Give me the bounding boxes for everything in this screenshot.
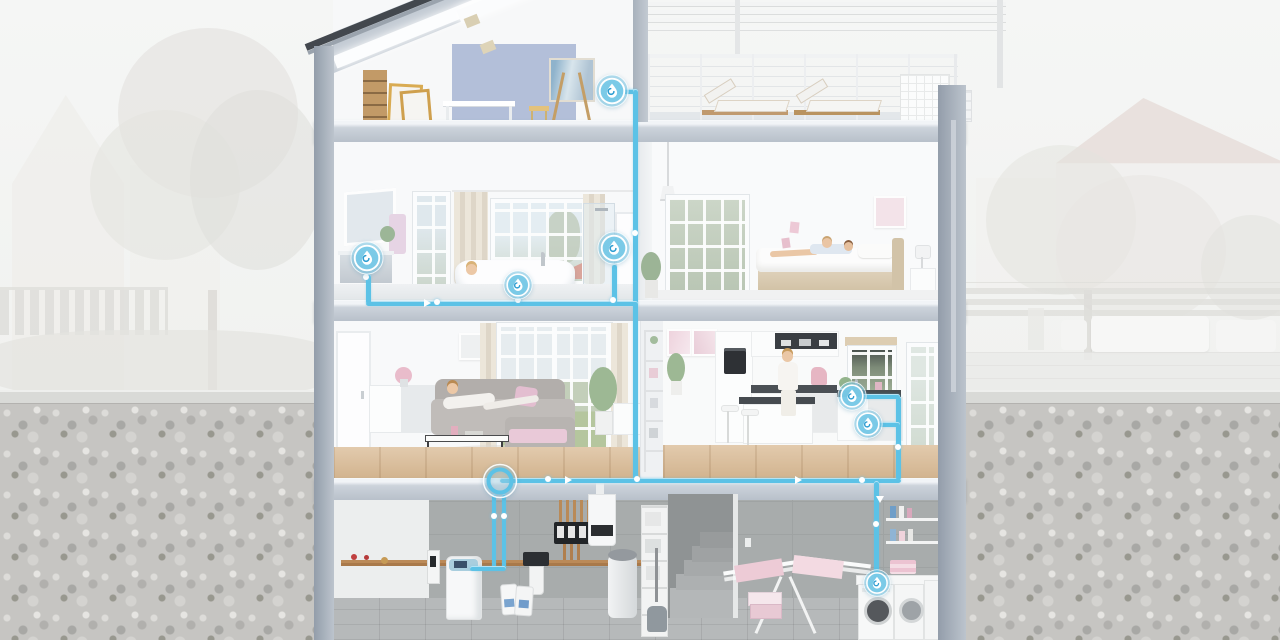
water-pipe-network xyxy=(0,0,1280,640)
water-point-kitchen-sink[interactable] xyxy=(837,381,867,411)
water-point-laundry-washing-machine[interactable] xyxy=(863,569,891,597)
water-point-kitchen-dishwasher[interactable] xyxy=(853,409,883,439)
pipe-junction-dot xyxy=(873,521,879,527)
flow-direction-arrow xyxy=(565,476,572,484)
water-pipe xyxy=(633,89,638,481)
flow-direction-arrow xyxy=(876,496,884,503)
water-pipe xyxy=(492,494,496,570)
water-point-bathroom-shower[interactable] xyxy=(597,231,631,265)
pipe-junction-dot xyxy=(632,230,638,236)
flow-direction-arrow xyxy=(795,476,802,484)
pipe-junction-dot xyxy=(634,476,640,482)
pipe-junction-dot xyxy=(491,513,497,519)
water-pipe xyxy=(470,566,506,571)
pipe-junction-dot xyxy=(610,297,616,303)
water-pipe xyxy=(500,478,901,483)
water-pipe xyxy=(896,396,901,480)
water-point-attic-studio[interactable] xyxy=(595,74,629,108)
pipe-junction-dot xyxy=(895,444,901,450)
pipe-junction-dot xyxy=(859,477,865,483)
water-pipe xyxy=(366,301,638,306)
water-point-bathroom-vanity[interactable] xyxy=(350,241,384,275)
scene-house-cross-section xyxy=(0,0,1280,640)
pipe-junction-dot xyxy=(501,513,507,519)
pipe-junction-dot xyxy=(545,476,551,482)
water-point-bathroom-bathtub[interactable] xyxy=(503,270,533,300)
flow-direction-arrow xyxy=(424,299,431,307)
pipe-junction-dot xyxy=(434,299,440,305)
water-point-main-connection[interactable] xyxy=(482,463,518,499)
water-pipe xyxy=(502,494,506,570)
